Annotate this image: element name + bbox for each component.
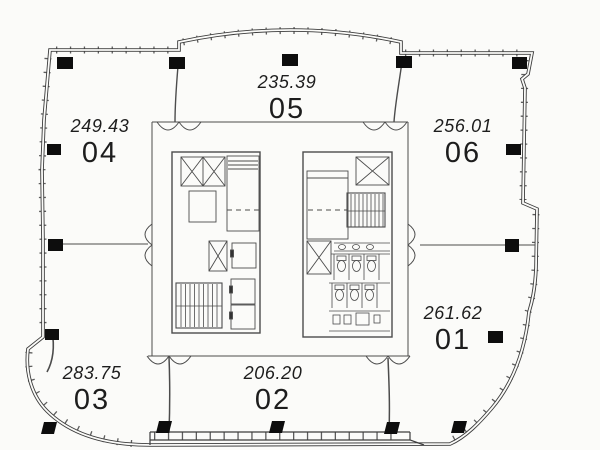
unit-number: 06 [401, 138, 525, 169]
shaft-x-brace [181, 157, 225, 186]
shaft-x-small [209, 241, 227, 271]
core-left-block [172, 152, 260, 333]
column-marker [41, 422, 57, 434]
column-marker [505, 239, 519, 252]
core-right-block [303, 152, 392, 337]
stair-right [347, 193, 385, 227]
upper-room [307, 171, 348, 239]
unit-area: 283.75 [30, 364, 154, 383]
column-marker [282, 54, 298, 66]
unit-label-04: 249.43 04 [38, 117, 162, 170]
elevator-cabs [230, 243, 257, 329]
service-shaft [227, 156, 259, 231]
unit-label-05: 235.39 05 [225, 73, 349, 126]
unit-area: 249.43 [38, 117, 162, 136]
column-marker [48, 239, 63, 251]
column-marker [169, 57, 185, 69]
unit-number: 05 [225, 94, 349, 125]
unit-area: 256.01 [401, 117, 525, 136]
column-marker [396, 56, 412, 68]
column-marker [269, 421, 285, 433]
column-marker [451, 421, 467, 433]
unit-area: 206.20 [211, 364, 335, 383]
unit-number: 02 [211, 385, 335, 416]
divider-05-06 [394, 62, 402, 122]
shaft-x-small-right [307, 241, 331, 274]
unit-label-01: 261.62 01 [394, 304, 512, 357]
unit-area: 261.62 [394, 304, 512, 323]
column-marker [45, 329, 59, 340]
column-marker [512, 57, 527, 69]
column-marker [57, 57, 73, 69]
unit-number: 03 [30, 385, 154, 416]
washrooms [329, 243, 390, 331]
unit-label-06: 256.01 06 [401, 117, 525, 170]
shaft-x-brace-right [356, 157, 389, 185]
unit-number: 04 [38, 138, 162, 169]
divider-04-05 [175, 66, 178, 122]
stair-left [176, 283, 222, 328]
divider-02-01 [388, 358, 389, 433]
unit-area: 235.39 [225, 73, 349, 92]
floor-plan: 249.43 04 235.39 05 256.01 06 261.62 01 … [0, 0, 600, 450]
unit-number: 01 [394, 325, 512, 356]
unit-label-03: 283.75 03 [30, 364, 154, 417]
unit-label-02: 206.20 02 [211, 364, 335, 417]
